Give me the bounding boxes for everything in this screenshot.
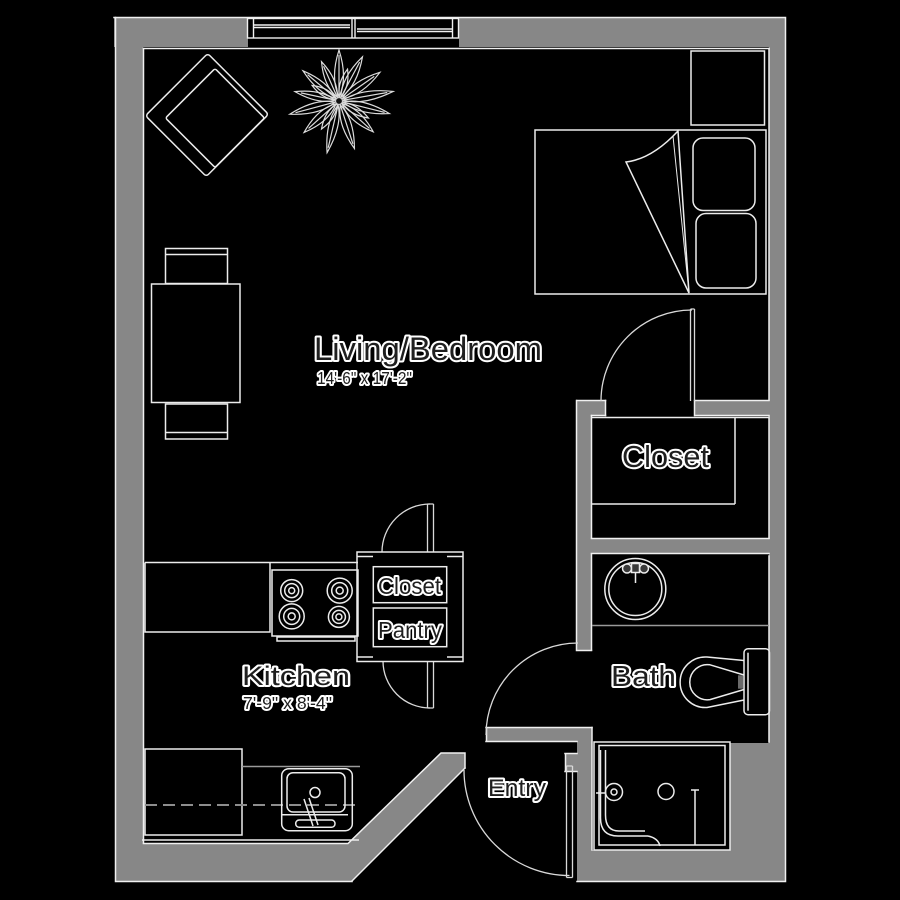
svg-text:Closet: Closet [378,573,442,599]
svg-text:Bath: Bath [611,661,676,693]
svg-text:14'-6" x 17'-2": 14'-6" x 17'-2" [317,368,412,388]
svg-text:7'-9" x 8'-4": 7'-9" x 8'-4" [243,693,332,713]
svg-text:Pantry: Pantry [378,617,442,643]
svg-text:Living/Bedroom: Living/Bedroom [314,331,542,367]
svg-text:Kitchen: Kitchen [242,661,350,691]
svg-text:Closet: Closet [622,439,709,474]
svg-text:Entry: Entry [488,775,546,802]
